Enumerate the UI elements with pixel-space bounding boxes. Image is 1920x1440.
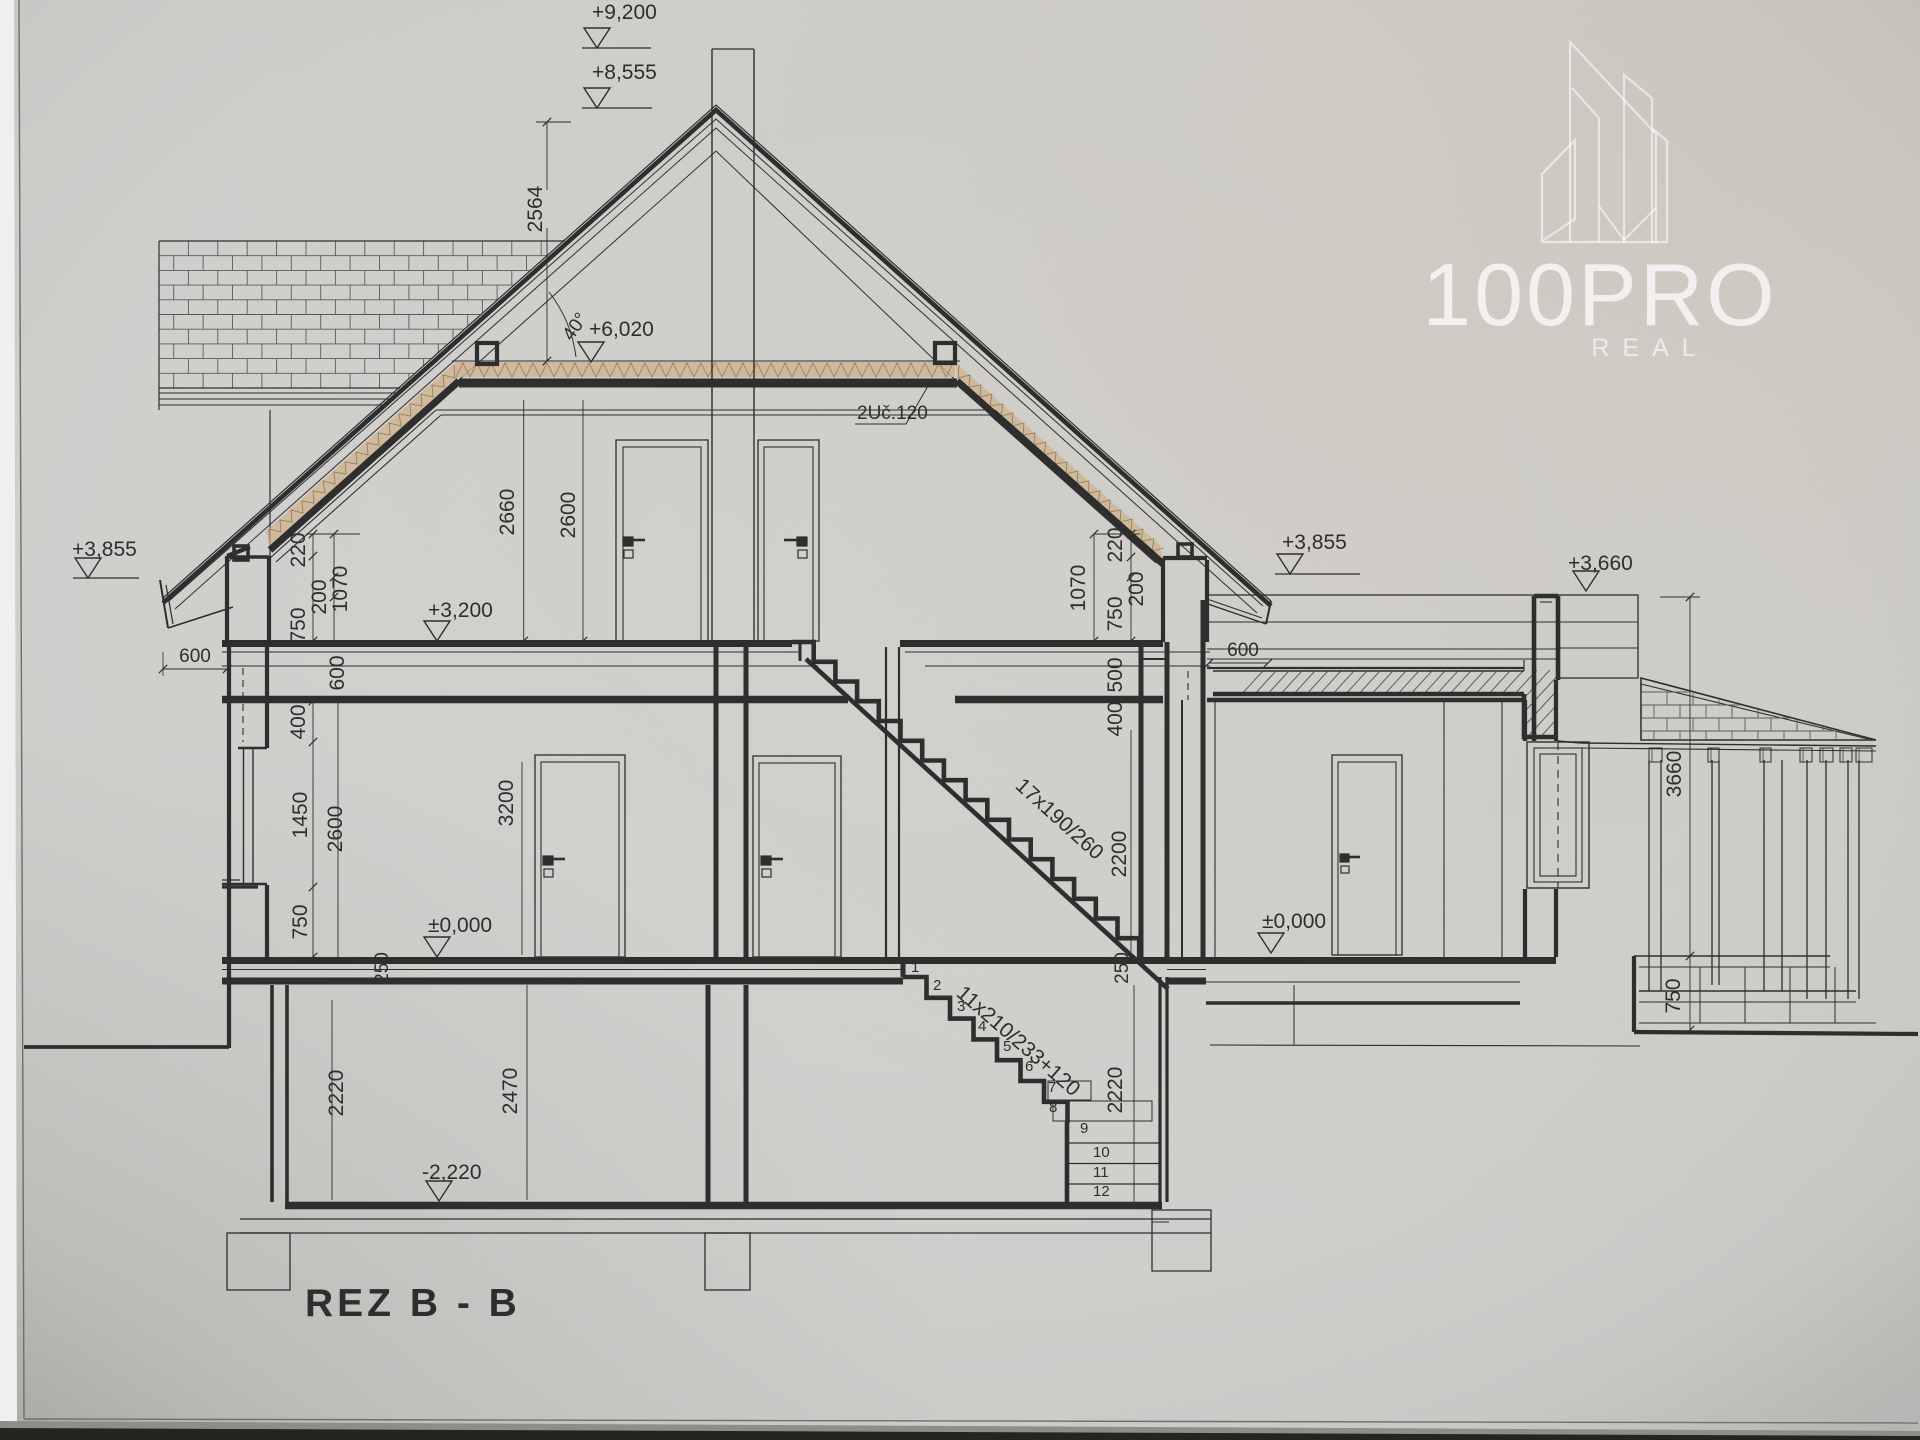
svg-text:750: 750 [1662,978,1685,1013]
svg-text:2660: 2660 [496,489,519,536]
svg-text:500: 500 [1104,657,1127,692]
svg-text:1070: 1070 [329,566,352,613]
svg-text:1: 1 [911,959,919,976]
svg-text:+9,200: +9,200 [592,1,657,24]
svg-text:750: 750 [1104,596,1127,631]
svg-text:200: 200 [308,579,331,614]
svg-text:200: 200 [1125,571,1148,606]
svg-text:750: 750 [287,607,310,642]
svg-text:400: 400 [287,704,310,739]
svg-text:1450: 1450 [289,792,312,839]
svg-text:2564: 2564 [524,185,547,232]
svg-text:2470: 2470 [499,1068,522,1115]
svg-text:2220: 2220 [1104,1067,1127,1114]
svg-text:250: 250 [1112,952,1133,984]
svg-text:10: 10 [1093,1144,1110,1161]
svg-text:6: 6 [1025,1058,1033,1075]
svg-text:3: 3 [957,998,965,1015]
svg-text:250: 250 [372,952,393,984]
svg-text:REAL: REAL [1591,334,1708,362]
svg-text:+8,555: +8,555 [592,61,657,84]
svg-text:1070: 1070 [1067,565,1090,612]
svg-text:400: 400 [1104,701,1127,736]
svg-text:2600: 2600 [557,492,580,539]
svg-text:3660: 3660 [1663,751,1686,798]
svg-text:2Uč.120: 2Uč.120 [857,403,928,424]
svg-text:220: 220 [287,532,310,567]
svg-text:220: 220 [1104,527,1127,562]
svg-text:±0,000: ±0,000 [428,914,492,937]
svg-text:4: 4 [978,1018,986,1035]
svg-text:2200: 2200 [1108,831,1131,878]
svg-text:REZ B - B: REZ B - B [305,1282,521,1325]
svg-text:600: 600 [326,655,349,690]
svg-text:11: 11 [1093,1164,1109,1181]
svg-text:+6,020: +6,020 [589,318,654,341]
svg-text:+3,200: +3,200 [428,599,493,622]
svg-text:750: 750 [289,904,312,939]
svg-text:+3,855: +3,855 [1282,531,1347,554]
svg-text:2220: 2220 [325,1070,348,1117]
svg-text:5: 5 [1003,1038,1011,1055]
svg-text:12: 12 [1093,1183,1110,1200]
svg-text:100PRO: 100PRO [1422,245,1778,344]
svg-text:7: 7 [1048,1079,1056,1096]
svg-text:2600: 2600 [324,806,347,853]
svg-text:3200: 3200 [495,780,518,827]
svg-text:2: 2 [933,977,941,994]
svg-text:600: 600 [1227,640,1259,661]
svg-text:±0,000: ±0,000 [1262,910,1326,933]
svg-text:600: 600 [179,646,211,667]
svg-text:9: 9 [1080,1120,1088,1137]
svg-text:8: 8 [1049,1099,1057,1116]
